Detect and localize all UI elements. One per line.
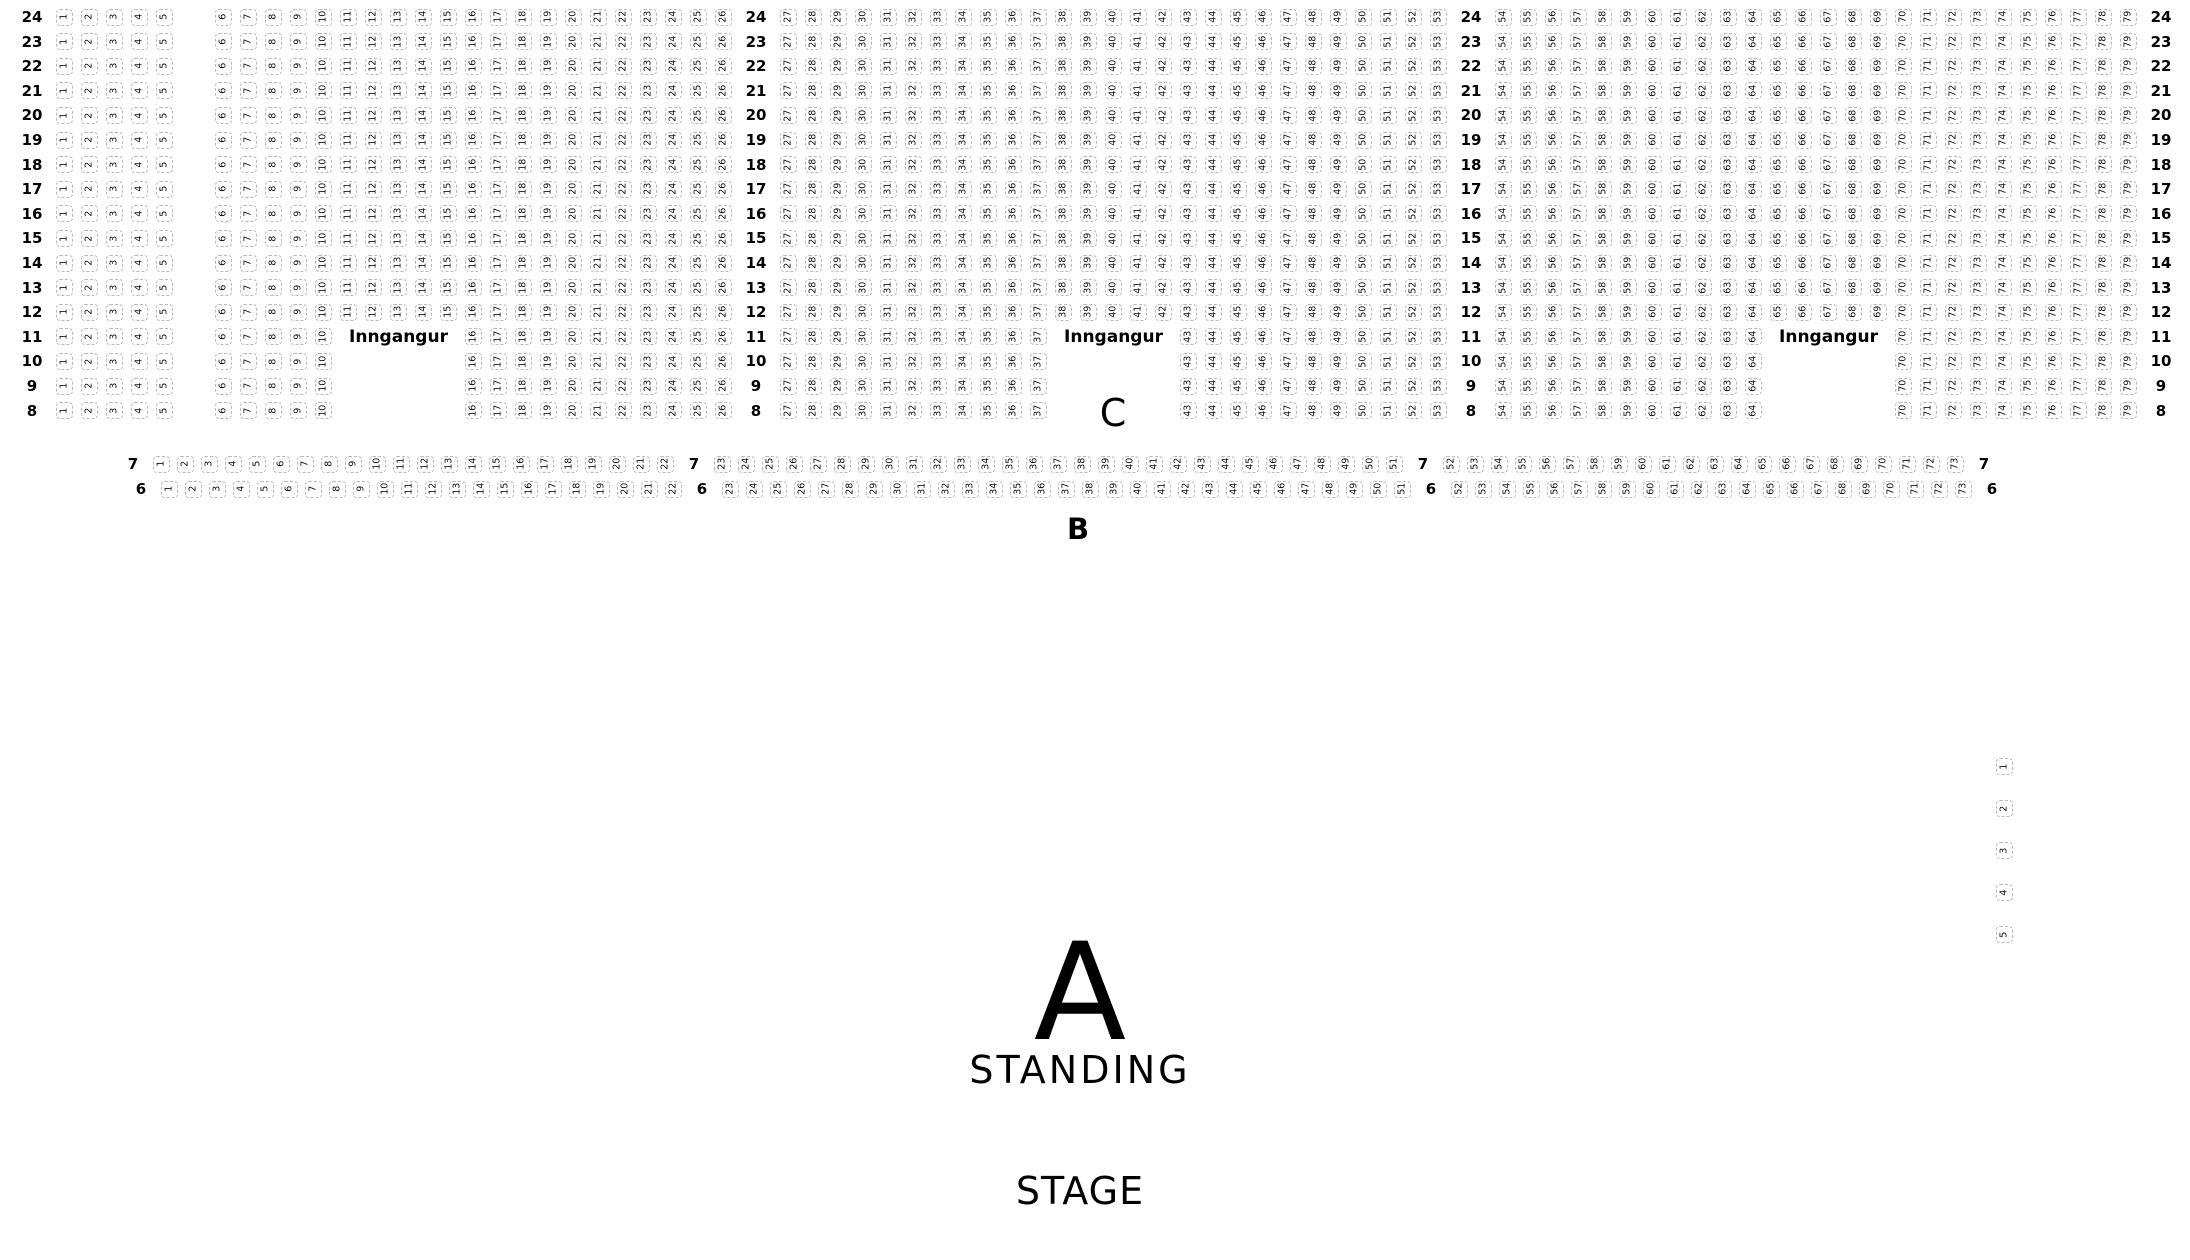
seat-c10-29[interactable]: 29	[830, 353, 847, 370]
seat-c11-30[interactable]: 30	[855, 328, 872, 345]
seat-c15-4[interactable]: 4	[131, 230, 148, 247]
seat-b6-29[interactable]: 29	[866, 481, 883, 498]
seat-c10-20[interactable]: 20	[565, 353, 582, 370]
seat-c23-35[interactable]: 35	[980, 33, 997, 50]
seat-c11-37[interactable]: 37	[1030, 328, 1047, 345]
seat-c22-1[interactable]: 1	[56, 58, 73, 75]
seat-c17-56[interactable]: 56	[1545, 181, 1562, 198]
seat-c20-13[interactable]: 13	[390, 107, 407, 124]
seat-b6-54[interactable]: 54	[1499, 481, 1516, 498]
seat-c23-66[interactable]: 66	[1795, 33, 1812, 50]
seat-c12-24[interactable]: 24	[665, 304, 682, 321]
seat-b6-25[interactable]: 25	[770, 481, 787, 498]
seat-c15-74[interactable]: 74	[1995, 230, 2012, 247]
seat-c19-65[interactable]: 65	[1770, 132, 1787, 149]
seat-c13-20[interactable]: 20	[565, 279, 582, 296]
seat-c19-62[interactable]: 62	[1695, 132, 1712, 149]
seat-c19-49[interactable]: 49	[1330, 132, 1347, 149]
seat-c12-33[interactable]: 33	[930, 304, 947, 321]
seat-b7-21[interactable]: 21	[633, 456, 650, 473]
seat-c16-5[interactable]: 5	[156, 205, 173, 222]
seat-b7-44[interactable]: 44	[1218, 456, 1235, 473]
seat-b6-57[interactable]: 57	[1571, 481, 1588, 498]
seat-c14-20[interactable]: 20	[565, 255, 582, 272]
seat-c18-8[interactable]: 8	[265, 156, 282, 173]
seat-c19-25[interactable]: 25	[690, 132, 707, 149]
seat-c8-17[interactable]: 17	[490, 402, 507, 419]
seat-c21-39[interactable]: 39	[1080, 82, 1097, 99]
seat-c9-31[interactable]: 31	[880, 378, 897, 395]
seat-c21-65[interactable]: 65	[1770, 82, 1787, 99]
seat-c10-7[interactable]: 7	[240, 353, 257, 370]
seat-c18-53[interactable]: 53	[1430, 156, 1447, 173]
seat-c22-74[interactable]: 74	[1995, 58, 2012, 75]
seat-c12-36[interactable]: 36	[1005, 304, 1022, 321]
seat-c23-22[interactable]: 22	[615, 33, 632, 50]
seat-c21-75[interactable]: 75	[2020, 82, 2037, 99]
seat-c20-4[interactable]: 4	[131, 107, 148, 124]
seat-c20-9[interactable]: 9	[290, 107, 307, 124]
seat-b7-59[interactable]: 59	[1611, 456, 1628, 473]
seat-c14-12[interactable]: 12	[365, 255, 382, 272]
seat-c15-72[interactable]: 72	[1945, 230, 1962, 247]
seat-c21-44[interactable]: 44	[1205, 82, 1222, 99]
seat-c13-36[interactable]: 36	[1005, 279, 1022, 296]
seat-c13-24[interactable]: 24	[665, 279, 682, 296]
seat-b7-28[interactable]: 28	[834, 456, 851, 473]
seat-c16-72[interactable]: 72	[1945, 205, 1962, 222]
seat-c8-10[interactable]: 10	[315, 402, 332, 419]
seat-c21-78[interactable]: 78	[2095, 82, 2112, 99]
seat-c16-78[interactable]: 78	[2095, 205, 2112, 222]
seat-c16-54[interactable]: 54	[1495, 205, 1512, 222]
seat-c23-12[interactable]: 12	[365, 33, 382, 50]
seat-c21-21[interactable]: 21	[590, 82, 607, 99]
seat-c17-4[interactable]: 4	[131, 181, 148, 198]
seat-c9-29[interactable]: 29	[830, 378, 847, 395]
seat-c18-45[interactable]: 45	[1230, 156, 1247, 173]
seat-c23-52[interactable]: 52	[1405, 33, 1422, 50]
seat-b7-69[interactable]: 69	[1851, 456, 1868, 473]
seat-c21-2[interactable]: 2	[81, 82, 98, 99]
seat-c8-16[interactable]: 16	[465, 402, 482, 419]
seat-c22-22[interactable]: 22	[615, 58, 632, 75]
seat-c11-21[interactable]: 21	[590, 328, 607, 345]
seat-c15-34[interactable]: 34	[955, 230, 972, 247]
seat-c15-60[interactable]: 60	[1645, 230, 1662, 247]
seat-c15-49[interactable]: 49	[1330, 230, 1347, 247]
seat-c15-36[interactable]: 36	[1005, 230, 1022, 247]
seat-c24-23[interactable]: 23	[640, 9, 657, 26]
seat-c15-2[interactable]: 2	[81, 230, 98, 247]
seat-c15-43[interactable]: 43	[1180, 230, 1197, 247]
seat-c12-50[interactable]: 50	[1355, 304, 1372, 321]
seat-c23-70[interactable]: 70	[1895, 33, 1912, 50]
seat-b6-36[interactable]: 36	[1034, 481, 1051, 498]
seat-c22-12[interactable]: 12	[365, 58, 382, 75]
seat-c14-77[interactable]: 77	[2070, 255, 2087, 272]
seat-c8-77[interactable]: 77	[2070, 402, 2087, 419]
seat-c24-8[interactable]: 8	[265, 9, 282, 26]
seat-c12-79[interactable]: 79	[2120, 304, 2137, 321]
seat-c19-2[interactable]: 2	[81, 132, 98, 149]
seat-c13-12[interactable]: 12	[365, 279, 382, 296]
seat-c22-76[interactable]: 76	[2045, 58, 2062, 75]
seat-c12-43[interactable]: 43	[1180, 304, 1197, 321]
seat-c20-59[interactable]: 59	[1620, 107, 1637, 124]
seat-c21-30[interactable]: 30	[855, 82, 872, 99]
seat-c20-20[interactable]: 20	[565, 107, 582, 124]
seat-c18-29[interactable]: 29	[830, 156, 847, 173]
seat-c12-6[interactable]: 6	[215, 304, 232, 321]
seat-c22-26[interactable]: 26	[715, 58, 732, 75]
seat-c16-69[interactable]: 69	[1870, 205, 1887, 222]
seat-b6-13[interactable]: 13	[449, 481, 466, 498]
seat-c14-55[interactable]: 55	[1520, 255, 1537, 272]
seat-c14-4[interactable]: 4	[131, 255, 148, 272]
seat-c17-46[interactable]: 46	[1255, 181, 1272, 198]
seat-b6-33[interactable]: 33	[962, 481, 979, 498]
seat-b6-9[interactable]: 9	[353, 481, 370, 498]
seat-c12-58[interactable]: 58	[1595, 304, 1612, 321]
seat-c23-57[interactable]: 57	[1570, 33, 1587, 50]
seat-c19-73[interactable]: 73	[1970, 132, 1987, 149]
seat-b6-59[interactable]: 59	[1619, 481, 1636, 498]
seat-c15-37[interactable]: 37	[1030, 230, 1047, 247]
seat-c16-26[interactable]: 26	[715, 205, 732, 222]
seat-c17-61[interactable]: 61	[1670, 181, 1687, 198]
seat-c12-29[interactable]: 29	[830, 304, 847, 321]
seat-c20-46[interactable]: 46	[1255, 107, 1272, 124]
seat-c11-18[interactable]: 18	[515, 328, 532, 345]
seat-c19-17[interactable]: 17	[490, 132, 507, 149]
seat-c9-64[interactable]: 64	[1745, 378, 1762, 395]
seat-c23-32[interactable]: 32	[905, 33, 922, 50]
seat-c11-51[interactable]: 51	[1380, 328, 1397, 345]
seat-c15-63[interactable]: 63	[1720, 230, 1737, 247]
seat-c15-75[interactable]: 75	[2020, 230, 2037, 247]
seat-c17-72[interactable]: 72	[1945, 181, 1962, 198]
seat-c12-3[interactable]: 3	[106, 304, 123, 321]
seat-b7-40[interactable]: 40	[1122, 456, 1139, 473]
seat-c17-31[interactable]: 31	[880, 181, 897, 198]
seat-c23-42[interactable]: 42	[1155, 33, 1172, 50]
seat-c13-63[interactable]: 63	[1720, 279, 1737, 296]
seat-c14-50[interactable]: 50	[1355, 255, 1372, 272]
seat-c24-79[interactable]: 79	[2120, 9, 2137, 26]
seat-b7-24[interactable]: 24	[738, 456, 755, 473]
seat-c8-29[interactable]: 29	[830, 402, 847, 419]
seat-c24-56[interactable]: 56	[1545, 9, 1562, 26]
seat-c19-64[interactable]: 64	[1745, 132, 1762, 149]
seat-c20-18[interactable]: 18	[515, 107, 532, 124]
seat-c24-32[interactable]: 32	[905, 9, 922, 26]
seat-c16-6[interactable]: 6	[215, 205, 232, 222]
seat-c22-61[interactable]: 61	[1670, 58, 1687, 75]
seat-c12-75[interactable]: 75	[2020, 304, 2037, 321]
seat-c20-24[interactable]: 24	[665, 107, 682, 124]
seat-c10-21[interactable]: 21	[590, 353, 607, 370]
seat-c22-24[interactable]: 24	[665, 58, 682, 75]
seat-b7-63[interactable]: 63	[1707, 456, 1724, 473]
seat-c16-1[interactable]: 1	[56, 205, 73, 222]
seat-c16-59[interactable]: 59	[1620, 205, 1637, 222]
seat-c15-26[interactable]: 26	[715, 230, 732, 247]
seat-c19-4[interactable]: 4	[131, 132, 148, 149]
seat-c24-72[interactable]: 72	[1945, 9, 1962, 26]
seat-c18-18[interactable]: 18	[515, 156, 532, 173]
seat-c20-75[interactable]: 75	[2020, 107, 2037, 124]
seat-c14-26[interactable]: 26	[715, 255, 732, 272]
seat-c14-66[interactable]: 66	[1795, 255, 1812, 272]
seat-c17-47[interactable]: 47	[1280, 181, 1297, 198]
seat-c10-18[interactable]: 18	[515, 353, 532, 370]
seat-c14-33[interactable]: 33	[930, 255, 947, 272]
seat-c12-18[interactable]: 18	[515, 304, 532, 321]
seat-c13-55[interactable]: 55	[1520, 279, 1537, 296]
seat-c11-71[interactable]: 71	[1920, 328, 1937, 345]
seat-c24-50[interactable]: 50	[1355, 9, 1372, 26]
seat-c17-2[interactable]: 2	[81, 181, 98, 198]
seat-c13-53[interactable]: 53	[1430, 279, 1447, 296]
seat-c24-13[interactable]: 13	[390, 9, 407, 26]
seat-c13-6[interactable]: 6	[215, 279, 232, 296]
seat-c8-72[interactable]: 72	[1945, 402, 1962, 419]
seat-c18-36[interactable]: 36	[1005, 156, 1022, 173]
seat-c13-32[interactable]: 32	[905, 279, 922, 296]
seat-c21-56[interactable]: 56	[1545, 82, 1562, 99]
seat-c18-50[interactable]: 50	[1355, 156, 1372, 173]
seat-c11-5[interactable]: 5	[156, 328, 173, 345]
seat-c21-55[interactable]: 55	[1520, 82, 1537, 99]
seat-b7-46[interactable]: 46	[1266, 456, 1283, 473]
seat-c22-44[interactable]: 44	[1205, 58, 1222, 75]
seat-c19-40[interactable]: 40	[1105, 132, 1122, 149]
seat-b6-5[interactable]: 5	[257, 481, 274, 498]
seat-c8-8[interactable]: 8	[265, 402, 282, 419]
seat-c10-60[interactable]: 60	[1645, 353, 1662, 370]
seat-c16-30[interactable]: 30	[855, 205, 872, 222]
seat-c24-11[interactable]: 11	[340, 9, 357, 26]
seat-b7-7[interactable]: 7	[297, 456, 314, 473]
seat-c24-74[interactable]: 74	[1995, 9, 2012, 26]
seat-c10-70[interactable]: 70	[1895, 353, 1912, 370]
seat-c8-59[interactable]: 59	[1620, 402, 1637, 419]
seat-c11-25[interactable]: 25	[690, 328, 707, 345]
seat-b6-60[interactable]: 60	[1643, 481, 1660, 498]
seat-c19-42[interactable]: 42	[1155, 132, 1172, 149]
seat-c13-78[interactable]: 78	[2095, 279, 2112, 296]
seat-b6-23[interactable]: 23	[722, 481, 739, 498]
seat-b6-49[interactable]: 49	[1346, 481, 1363, 498]
seat-b6-37[interactable]: 37	[1058, 481, 1075, 498]
seat-c8-73[interactable]: 73	[1970, 402, 1987, 419]
seat-c11-43[interactable]: 43	[1180, 328, 1197, 345]
seat-c23-49[interactable]: 49	[1330, 33, 1347, 50]
seat-c13-62[interactable]: 62	[1695, 279, 1712, 296]
seat-c17-77[interactable]: 77	[2070, 181, 2087, 198]
seat-c24-66[interactable]: 66	[1795, 9, 1812, 26]
seat-c23-18[interactable]: 18	[515, 33, 532, 50]
seat-c14-40[interactable]: 40	[1105, 255, 1122, 272]
seat-c9-53[interactable]: 53	[1430, 378, 1447, 395]
seat-c17-41[interactable]: 41	[1130, 181, 1147, 198]
seat-c18-40[interactable]: 40	[1105, 156, 1122, 173]
seat-c10-19[interactable]: 19	[540, 353, 557, 370]
seat-c9-18[interactable]: 18	[515, 378, 532, 395]
seat-c17-1[interactable]: 1	[56, 181, 73, 198]
seat-c11-70[interactable]: 70	[1895, 328, 1912, 345]
seat-c10-4[interactable]: 4	[131, 353, 148, 370]
seat-c14-8[interactable]: 8	[265, 255, 282, 272]
seat-c11-48[interactable]: 48	[1305, 328, 1322, 345]
seat-c22-38[interactable]: 38	[1055, 58, 1072, 75]
seat-c21-69[interactable]: 69	[1870, 82, 1887, 99]
seat-c8-54[interactable]: 54	[1495, 402, 1512, 419]
seat-c8-26[interactable]: 26	[715, 402, 732, 419]
seat-b6-64[interactable]: 64	[1739, 481, 1756, 498]
seat-c21-79[interactable]: 79	[2120, 82, 2137, 99]
seat-b6-17[interactable]: 17	[545, 481, 562, 498]
seat-c21-73[interactable]: 73	[1970, 82, 1987, 99]
seat-c15-44[interactable]: 44	[1205, 230, 1222, 247]
seat-c8-48[interactable]: 48	[1305, 402, 1322, 419]
seat-c12-76[interactable]: 76	[2045, 304, 2062, 321]
seat-c12-8[interactable]: 8	[265, 304, 282, 321]
seat-c14-25[interactable]: 25	[690, 255, 707, 272]
seat-c24-25[interactable]: 25	[690, 9, 707, 26]
seat-b7-36[interactable]: 36	[1026, 456, 1043, 473]
seat-c20-23[interactable]: 23	[640, 107, 657, 124]
seat-c11-74[interactable]: 74	[1995, 328, 2012, 345]
seat-c24-54[interactable]: 54	[1495, 9, 1512, 26]
seat-c23-17[interactable]: 17	[490, 33, 507, 50]
seat-c15-57[interactable]: 57	[1570, 230, 1587, 247]
seat-c13-16[interactable]: 16	[465, 279, 482, 296]
seat-c22-25[interactable]: 25	[690, 58, 707, 75]
seat-c10-62[interactable]: 62	[1695, 353, 1712, 370]
seat-c15-27[interactable]: 27	[780, 230, 797, 247]
seat-c15-30[interactable]: 30	[855, 230, 872, 247]
seat-c24-65[interactable]: 65	[1770, 9, 1787, 26]
seat-c15-35[interactable]: 35	[980, 230, 997, 247]
seat-c16-40[interactable]: 40	[1105, 205, 1122, 222]
seat-c13-69[interactable]: 69	[1870, 279, 1887, 296]
seat-b7-71[interactable]: 71	[1899, 456, 1916, 473]
seat-c21-68[interactable]: 68	[1845, 82, 1862, 99]
seat-b7-37[interactable]: 37	[1050, 456, 1067, 473]
seat-c17-48[interactable]: 48	[1305, 181, 1322, 198]
seat-c17-5[interactable]: 5	[156, 181, 173, 198]
seat-c15-17[interactable]: 17	[490, 230, 507, 247]
seat-c12-22[interactable]: 22	[615, 304, 632, 321]
seat-c18-17[interactable]: 17	[490, 156, 507, 173]
seat-b7-10[interactable]: 10	[369, 456, 386, 473]
seat-c22-33[interactable]: 33	[930, 58, 947, 75]
seat-c14-39[interactable]: 39	[1080, 255, 1097, 272]
seat-c17-42[interactable]: 42	[1155, 181, 1172, 198]
seat-c13-75[interactable]: 75	[2020, 279, 2037, 296]
seat-c21-32[interactable]: 32	[905, 82, 922, 99]
seat-c20-16[interactable]: 16	[465, 107, 482, 124]
seat-c8-35[interactable]: 35	[980, 402, 997, 419]
seat-c20-54[interactable]: 54	[1495, 107, 1512, 124]
seat-c22-39[interactable]: 39	[1080, 58, 1097, 75]
seat-c23-68[interactable]: 68	[1845, 33, 1862, 50]
seat-c8-4[interactable]: 4	[131, 402, 148, 419]
seat-c13-13[interactable]: 13	[390, 279, 407, 296]
seat-c20-17[interactable]: 17	[490, 107, 507, 124]
seat-c23-13[interactable]: 13	[390, 33, 407, 50]
seat-c24-26[interactable]: 26	[715, 9, 732, 26]
seat-c15-41[interactable]: 41	[1130, 230, 1147, 247]
seat-b6-24[interactable]: 24	[746, 481, 763, 498]
seat-c22-4[interactable]: 4	[131, 58, 148, 75]
seat-c15-42[interactable]: 42	[1155, 230, 1172, 247]
seat-c17-18[interactable]: 18	[515, 181, 532, 198]
seat-c9-8[interactable]: 8	[265, 378, 282, 395]
seat-c13-51[interactable]: 51	[1380, 279, 1397, 296]
seat-c18-38[interactable]: 38	[1055, 156, 1072, 173]
seat-c14-47[interactable]: 47	[1280, 255, 1297, 272]
seat-c20-45[interactable]: 45	[1230, 107, 1247, 124]
seat-c9-59[interactable]: 59	[1620, 378, 1637, 395]
seat-c12-68[interactable]: 68	[1845, 304, 1862, 321]
seat-c10-31[interactable]: 31	[880, 353, 897, 370]
seat-c24-42[interactable]: 42	[1155, 9, 1172, 26]
seat-c14-56[interactable]: 56	[1545, 255, 1562, 272]
seat-b6-16[interactable]: 16	[521, 481, 538, 498]
seat-c21-7[interactable]: 7	[240, 82, 257, 99]
seat-c19-28[interactable]: 28	[805, 132, 822, 149]
seat-c12-51[interactable]: 51	[1380, 304, 1397, 321]
seat-c9-60[interactable]: 60	[1645, 378, 1662, 395]
seat-c20-51[interactable]: 51	[1380, 107, 1397, 124]
seat-c11-54[interactable]: 54	[1495, 328, 1512, 345]
seat-c21-64[interactable]: 64	[1745, 82, 1762, 99]
seat-c16-75[interactable]: 75	[2020, 205, 2037, 222]
seat-c14-24[interactable]: 24	[665, 255, 682, 272]
seat-c16-22[interactable]: 22	[615, 205, 632, 222]
seat-c22-28[interactable]: 28	[805, 58, 822, 75]
seat-c22-41[interactable]: 41	[1130, 58, 1147, 75]
seat-c21-76[interactable]: 76	[2045, 82, 2062, 99]
seat-c16-50[interactable]: 50	[1355, 205, 1372, 222]
seat-c13-44[interactable]: 44	[1205, 279, 1222, 296]
seat-c18-51[interactable]: 51	[1380, 156, 1397, 173]
seat-c11-33[interactable]: 33	[930, 328, 947, 345]
seat-c11-50[interactable]: 50	[1355, 328, 1372, 345]
seat-c11-49[interactable]: 49	[1330, 328, 1347, 345]
seat-c14-63[interactable]: 63	[1720, 255, 1737, 272]
seat-c19-10[interactable]: 10	[315, 132, 332, 149]
seat-c16-27[interactable]: 27	[780, 205, 797, 222]
seat-c22-20[interactable]: 20	[565, 58, 582, 75]
seat-c10-28[interactable]: 28	[805, 353, 822, 370]
seat-c17-3[interactable]: 3	[106, 181, 123, 198]
seat-c11-27[interactable]: 27	[780, 328, 797, 345]
seat-c16-43[interactable]: 43	[1180, 205, 1197, 222]
seat-c8-45[interactable]: 45	[1230, 402, 1247, 419]
seat-c17-33[interactable]: 33	[930, 181, 947, 198]
seat-b6-10[interactable]: 10	[377, 481, 394, 498]
seat-c14-27[interactable]: 27	[780, 255, 797, 272]
seat-c11-10[interactable]: 10	[315, 328, 332, 345]
seat-c9-73[interactable]: 73	[1970, 378, 1987, 395]
seat-c16-36[interactable]: 36	[1005, 205, 1022, 222]
seat-c23-36[interactable]: 36	[1005, 33, 1022, 50]
seat-c24-52[interactable]: 52	[1405, 9, 1422, 26]
